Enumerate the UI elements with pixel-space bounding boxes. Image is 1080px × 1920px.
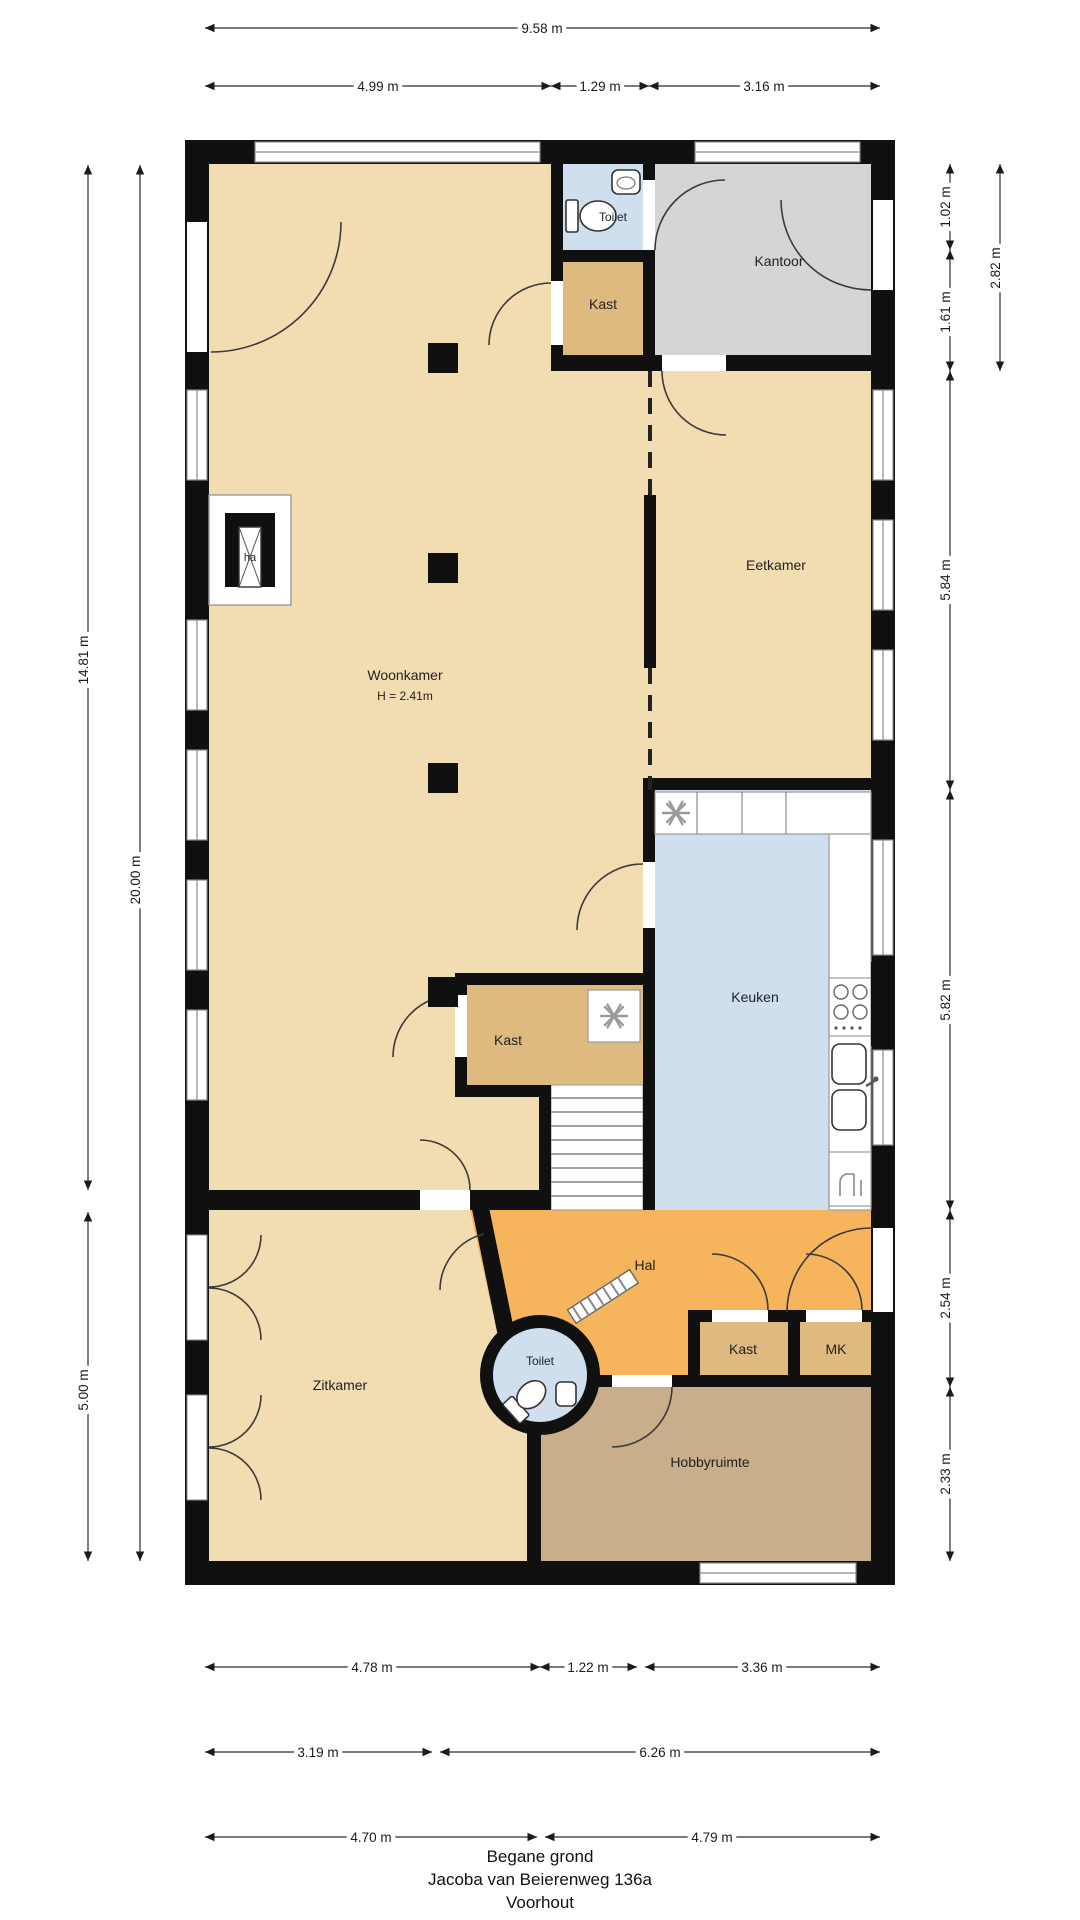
room-label-keuken: Keuken — [731, 989, 778, 1005]
window-keuken-1 — [873, 840, 893, 955]
door-opening-kantoor-right — [873, 200, 893, 290]
french-door-zitkamer-1 — [187, 1235, 207, 1340]
dim-bottom-r1-1: 4.78 m — [351, 1660, 392, 1675]
floorplan-page: ha Toilet Kast Kantoor Eetkamer Woonkame… — [0, 0, 1080, 1920]
window-left-4 — [187, 880, 207, 970]
room-label-woonkamer: Woonkamer — [367, 667, 443, 683]
dim-left-total: 20.00 m — [128, 856, 143, 905]
window-left-5 — [187, 1010, 207, 1100]
door-opening-mk — [806, 1310, 862, 1322]
dim-bottom-r3-1: 4.70 m — [350, 1830, 391, 1845]
window-kantoor-top — [695, 142, 860, 162]
french-door-zitkamer-2 — [187, 1395, 207, 1500]
dim-right-2: 1.61 m — [938, 291, 953, 332]
room-label-hobbyruimte: Hobbyruimte — [670, 1454, 750, 1470]
kast-mid-freezer — [588, 990, 640, 1042]
door-opening-woonkamer-left — [187, 222, 207, 352]
dim-bottom-r2-2: 6.26 m — [639, 1745, 680, 1760]
fireplace-label: ha — [244, 552, 257, 564]
room-label-zitkamer: Zitkamer — [313, 1377, 368, 1393]
dim-top-2: 1.29 m — [579, 79, 620, 94]
room-label-hal: Hal — [634, 1257, 655, 1273]
stove-icon — [829, 978, 871, 1036]
dimensions-left: 14.81 m 5.00 m 20.00 m — [76, 165, 143, 1561]
dimensions-bottom: 4.78 m 1.22 m 3.36 m 3.19 m 6.26 m 4.70 … — [205, 1660, 880, 1845]
dim-bottom-r2-1: 3.19 m — [297, 1745, 338, 1760]
dim-top-total: 9.58 m — [521, 21, 562, 36]
window-eetkamer-3 — [873, 650, 893, 740]
toilet-tank-icon — [566, 200, 578, 232]
window-keuken-2 — [873, 1050, 893, 1145]
dim-right-12: 2.82 m — [988, 247, 1003, 288]
dim-left-upper: 14.81 m — [76, 636, 91, 685]
door-opening-keuken — [643, 862, 655, 928]
window-eetkamer-1 — [873, 390, 893, 480]
window-left-3 — [187, 750, 207, 840]
room-label-mk: MK — [826, 1341, 848, 1357]
window-left-1 — [187, 390, 207, 480]
dimensions-right: 1.02 m 1.61 m 2.82 m 5.84 m 5.82 m 2.54 … — [938, 164, 1003, 1561]
front-door-opening — [873, 1228, 893, 1312]
dim-right-1: 1.02 m — [938, 186, 953, 227]
room-label-kast-top: Kast — [589, 296, 617, 312]
room-label-woonkamer-height: H = 2.41m — [377, 689, 433, 703]
room-label-kantoor: Kantoor — [754, 253, 803, 269]
door-opening-kast-hal — [712, 1310, 768, 1322]
dim-right-6: 2.33 m — [938, 1453, 953, 1494]
room-label-eetkamer: Eetkamer — [746, 557, 806, 573]
fireplace: ha — [209, 495, 291, 605]
room-label-kast-mid: Kast — [494, 1032, 522, 1048]
window-woonkamer-top — [255, 142, 540, 162]
window-hobbyruimte-bottom — [700, 1563, 856, 1583]
window-eetkamer-2 — [873, 520, 893, 610]
dimensions-top: 9.58 m 4.99 m 1.29 m 3.16 m — [205, 21, 880, 94]
dim-right-3: 5.84 m — [938, 559, 953, 600]
staircase — [551, 1085, 643, 1210]
floor-hobbyruimte — [541, 1387, 871, 1561]
room-label-kast-hal: Kast — [729, 1341, 757, 1357]
dim-right-5: 2.54 m — [938, 1277, 953, 1318]
dim-bottom-r1-3: 3.36 m — [741, 1660, 782, 1675]
door-opening-kast-top — [551, 281, 563, 345]
partition-solid-segment — [644, 495, 656, 668]
dim-right-4: 5.82 m — [938, 979, 953, 1020]
title-city: Voorhout — [506, 1893, 574, 1912]
dim-bottom-r3-2: 4.79 m — [691, 1830, 732, 1845]
sink-icon — [556, 1382, 576, 1406]
door-opening-kantoor-left — [643, 180, 655, 250]
title-address: Jacoba van Beierenweg 136a — [428, 1870, 653, 1889]
dim-bottom-r1-2: 1.22 m — [567, 1660, 608, 1675]
sink-icon — [612, 170, 640, 194]
floorplan-drawing: ha Toilet Kast Kantoor Eetkamer Woonkame… — [0, 0, 1080, 1920]
title-block: Begane grond Jacoba van Beierenweg 136a … — [428, 1847, 653, 1912]
room-label-toilet-top: Toilet — [599, 210, 628, 224]
dim-top-3: 3.16 m — [743, 79, 784, 94]
title-floor: Begane grond — [487, 1847, 594, 1866]
door-opening-hobbyruimte — [612, 1375, 672, 1387]
window-left-2 — [187, 620, 207, 710]
dishwasher-icon — [829, 1152, 871, 1206]
dim-left-lower: 5.00 m — [76, 1369, 91, 1410]
door-opening-hal-woonkamer — [420, 1190, 470, 1210]
door-opening-eetkamer — [662, 355, 726, 371]
dim-top-1: 4.99 m — [357, 79, 398, 94]
room-label-toilet-round: Toilet — [526, 1354, 555, 1368]
